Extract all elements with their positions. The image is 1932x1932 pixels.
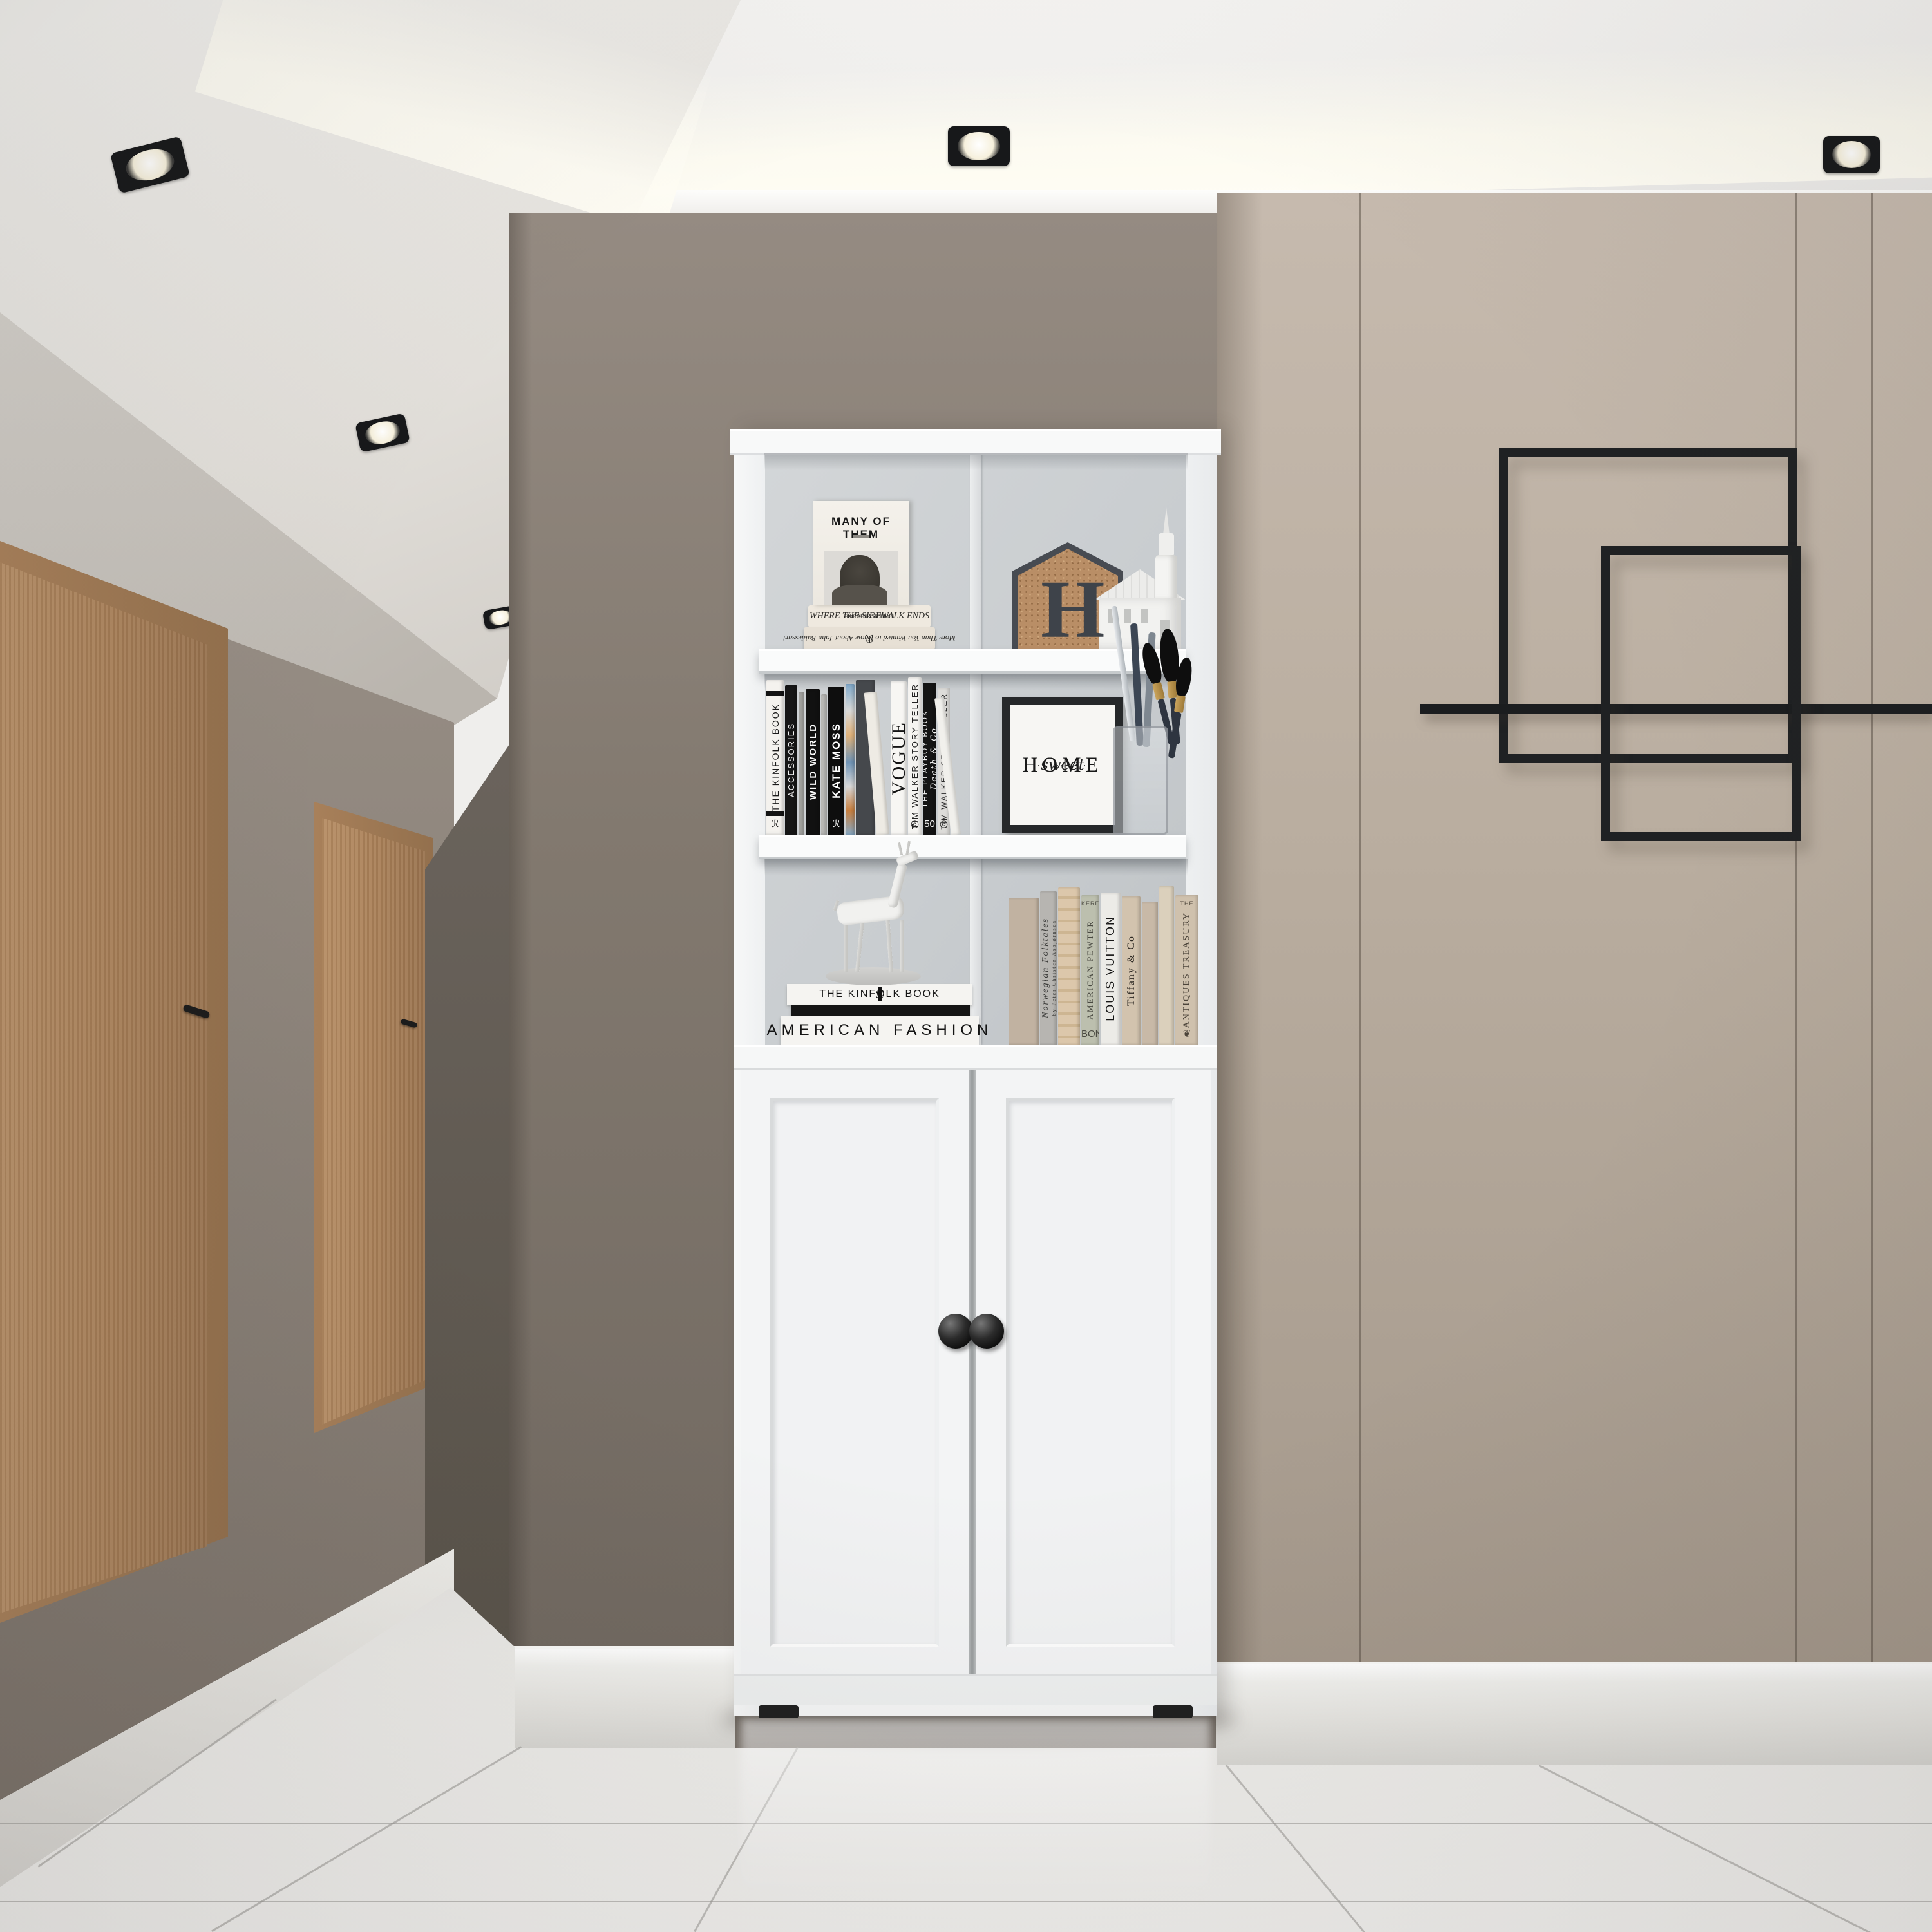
shelf2-book-foot-glyph: ◎ — [908, 818, 922, 829]
shelf2-book-spine-6: KATE MOSSℛ — [828, 687, 844, 835]
deer-figurine-base — [826, 967, 921, 985]
cabinet-foot-left — [759, 1705, 799, 1718]
publisher-logo: ℛ — [866, 632, 874, 645]
shelf-shadow-3 — [764, 859, 1188, 876]
brush-ferrule — [1174, 695, 1186, 713]
shelf2-book-spine-2: ACCESSORIES — [785, 685, 797, 835]
shelf3-book-title: ANTIQUES TREASURY — [1182, 912, 1192, 1028]
shelf2-book-title: KATE MOSS — [830, 723, 843, 799]
shelf2-book-foot-glyph: 50 — [923, 819, 936, 829]
shelf2-book-spine-4: WILD WORLD — [806, 689, 820, 835]
framed-print-home-sweet-home: ············· HOME sweet HOME ··········… — [1002, 697, 1123, 833]
deer-leg — [844, 917, 848, 972]
shelf3-book-spine-5: LOUIS VUITTON — [1101, 893, 1121, 1045]
cabinet-foot-right — [1153, 1705, 1193, 1718]
shelf2-book-spine-5 — [821, 694, 827, 835]
glass-brush-cup — [1113, 726, 1168, 835]
shelf2-book-title: TIM WALKER STORY TELLER — [910, 683, 920, 829]
shelf3-book-title: Norwegian Folktales — [1041, 918, 1051, 1018]
bookcase-top-board — [730, 429, 1221, 455]
baseboard-beige-wall — [1216, 1662, 1932, 1765]
downlight-bulb — [1832, 141, 1871, 168]
spine-bar — [878, 987, 882, 1001]
cabinet-floor-reflection — [741, 1718, 1211, 1905]
downlight-bulb — [958, 132, 999, 161]
baseboard-gray-wall — [509, 1646, 735, 1748]
house-window — [1124, 609, 1131, 623]
cabinet-door-gap — [969, 1070, 976, 1674]
shelf2-book-title: VOGUE — [891, 721, 907, 795]
cabinet-plinth — [734, 1674, 1217, 1705]
shelf2-book-spine-12: THE PLAYBOY BOOKDeath & Co50 — [923, 683, 936, 835]
shelf2-book-spine-3 — [799, 692, 804, 835]
shelf2-book-spine-10: VOGUE — [891, 681, 907, 835]
shelf3-book-spine-4: AMERICAN PEWTERBONANZAKERFOOT — [1081, 895, 1099, 1045]
magazine-subtitle-line — [853, 535, 869, 538]
book-kinfolk-flat: ℛ THE KINFOLK BOOK — [787, 984, 972, 1005]
house-model-cupola — [1159, 533, 1174, 556]
shelf-shadow-1 — [764, 453, 1188, 470]
shelf3-book-top-label: THE — [1175, 900, 1198, 907]
shelf2-book-title: THE KINFOLK BOOK — [770, 703, 781, 811]
downlight-bulb — [364, 419, 402, 446]
recessed-downlight-room-right — [1823, 136, 1880, 173]
shelf3-book-spine-9: ANTIQUES TREASURY❦THE — [1175, 895, 1198, 1045]
shelf3-book-foot-glyph: ❦ — [1175, 1028, 1198, 1039]
shelf3-book-title: Tiffany & Co — [1126, 935, 1137, 1006]
shelf3-book-title: LOUIS VUITTON — [1104, 916, 1117, 1021]
book-american-fashion: AMERICAN FASHION — [781, 1016, 979, 1045]
house-model-tower — [1155, 555, 1177, 600]
letter-h-decor: H — [1041, 569, 1094, 649]
stacked-book-baldessari: More Than You Wanted to Know About John … — [804, 627, 935, 649]
beige-paneled-wall — [1217, 193, 1932, 1671]
shelf3-book-spine-1 — [1009, 898, 1039, 1045]
american-fashion-title: AMERICAN FASHION — [781, 1016, 979, 1045]
recessed-downlight-room-center — [948, 126, 1010, 166]
book-publisher-right: HARPERCOLLINS — [844, 614, 895, 620]
bookcase-center-divider — [970, 453, 981, 1045]
stacked-book-sidewalk-ends: SILVERSTEIN WHERE THE SIDEWALK ENDS HARP… — [808, 605, 931, 627]
shelf3-book-subtitle: by Peter Christen Asbjørnsen — [1051, 920, 1057, 1016]
shelf3-book-spine-7 — [1142, 902, 1158, 1045]
cabinet-knob-left — [938, 1314, 973, 1349]
cabinet-door-right-panel — [1006, 1098, 1175, 1647]
interior-photo: SILVERSTEIN WHERE THE SIDEWALK ENDS HARP… — [0, 0, 1932, 1932]
shelf2-book-spine-1: THE KINFOLK BOOKℛ — [766, 680, 784, 835]
cabinet-top-board — [734, 1045, 1217, 1070]
bookcase-cast-shadow — [1217, 193, 1262, 1671]
house-window — [1141, 609, 1148, 623]
portrait-body — [832, 585, 887, 605]
shelf-board-2 — [759, 835, 1186, 859]
magazine-cover-photo — [824, 551, 898, 605]
print-dots-bottom: ············· — [1037, 762, 1088, 768]
shelf3-book-top-label: KERFOOT — [1081, 900, 1099, 907]
shelf2-book-spine-7 — [846, 684, 855, 835]
shelf3-book-spine-3 — [1058, 887, 1080, 1045]
shelf2-book-foot-glyph: ℛ — [766, 818, 784, 829]
cabinet-knob-right — [969, 1314, 1004, 1349]
wall-panel-seam — [1871, 193, 1873, 1671]
deer-leg — [900, 920, 904, 972]
book-black-flat — [791, 1005, 970, 1016]
shelf3-book-foot-glyph: BONANZA — [1081, 1028, 1099, 1039]
shelf2-book-foot-glyph: ℛ — [828, 818, 844, 829]
shelf3-book-spine-8 — [1159, 886, 1174, 1045]
shelf2-book-title: WILD WORLD — [808, 723, 819, 800]
downlight-bulb — [122, 144, 177, 185]
magazine-many-of-them: MANY OF THEM — [813, 501, 909, 605]
wall-panel-seam — [1795, 193, 1797, 1671]
shelf2-book-script: Death & Co — [929, 727, 936, 790]
shelf3-book-spine-6: Tiffany & Co — [1122, 896, 1141, 1045]
shelf2-book-title: ACCESSORIES — [786, 723, 796, 797]
cabinet-door-left-panel — [770, 1098, 939, 1647]
shelf2-book-spine-11: TIM WALKER STORY TELLER◎ — [908, 677, 922, 835]
shelf3-book-spine-2: Norwegian Folktalesby Peter Christen Asb… — [1040, 891, 1057, 1045]
wall-panel-seam — [1359, 193, 1361, 1671]
wooden-door-near — [0, 562, 207, 1618]
wall-art-square-frame-lower — [1601, 546, 1801, 841]
shelf2-book-foot-glyph: ◎ — [938, 818, 950, 829]
wooden-door-far — [322, 818, 425, 1426]
gray-wall-corner-shade — [509, 213, 532, 1752]
shelf2-book-title: THE PLAYBOY BOOK — [923, 710, 929, 808]
shelf3-book-title: AMERICAN PEWTER — [1085, 920, 1095, 1020]
hallway-end-wall — [422, 708, 518, 1687]
